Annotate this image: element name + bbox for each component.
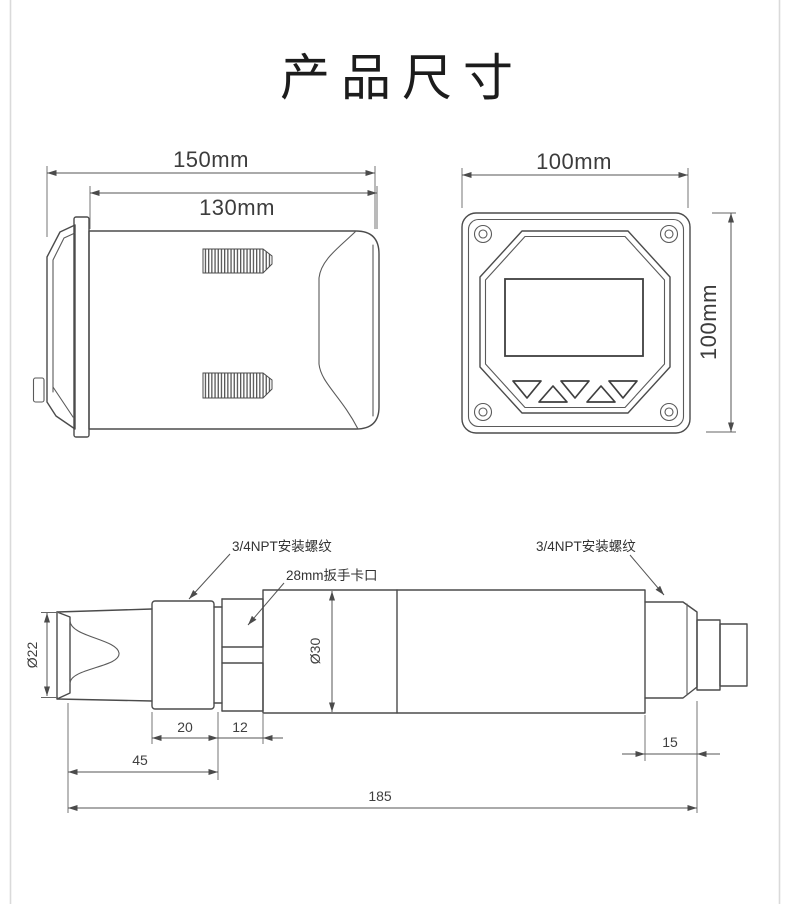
probe-tip: [57, 609, 152, 701]
rear-connector: [720, 624, 747, 686]
dim-185: 185: [368, 788, 392, 804]
dim-tip-diameter: Ø22: [24, 642, 40, 669]
lcd-screen: [505, 279, 643, 356]
vent-slot-bottom: [203, 373, 272, 398]
latch: [34, 378, 45, 402]
flange: [74, 217, 89, 437]
vent-slot-top: [203, 249, 272, 273]
button-down-1: [513, 381, 541, 398]
button-down-2: [561, 381, 589, 398]
dim-12: 12: [232, 719, 248, 735]
dim-130mm: 130mm: [199, 195, 275, 220]
rear-step-ring: [697, 620, 720, 690]
product-dimensions-page: 产品尺寸 150mm 130mm 100mm: [0, 0, 790, 904]
dim-body-diameter: Ø30: [307, 638, 323, 665]
dim-15: 15: [662, 734, 678, 750]
body-contour-curve: [319, 231, 358, 429]
keypad-buttons: [513, 381, 637, 402]
probe-drawing: 3/4NPT安装螺纹 28mm扳手卡口 3/4NPT安装螺纹 Ø22: [24, 539, 747, 813]
dim-20: 20: [177, 719, 193, 735]
label-rear-thread: 3/4NPT安装螺纹: [536, 539, 636, 554]
dim-150mm: 150mm: [173, 147, 249, 172]
page-title: 产品尺寸: [280, 50, 524, 106]
label-wrench-flat: 28mm扳手卡口: [286, 568, 378, 583]
button-up-1: [539, 386, 567, 402]
side-view-drawing: 150mm 130mm: [34, 147, 380, 437]
dim-100mm-width: 100mm: [536, 149, 612, 174]
button-up-2: [587, 386, 615, 402]
bezel-inner-slant: [53, 387, 73, 417]
label-front-thread: 3/4NPT安装螺纹: [232, 539, 332, 554]
wrench-section: [222, 599, 263, 711]
front-thread-section: [152, 601, 214, 709]
bezel-inner-line: [53, 233, 75, 392]
front-view-drawing: 100mm 100mm: [462, 149, 736, 433]
dim-45: 45: [132, 752, 148, 768]
button-down-3: [609, 381, 637, 398]
rear-thread-section: [645, 602, 697, 698]
product-dimensions-diagram: 产品尺寸 150mm 130mm 100mm: [0, 0, 790, 904]
dim-100mm-height: 100mm: [696, 284, 721, 360]
